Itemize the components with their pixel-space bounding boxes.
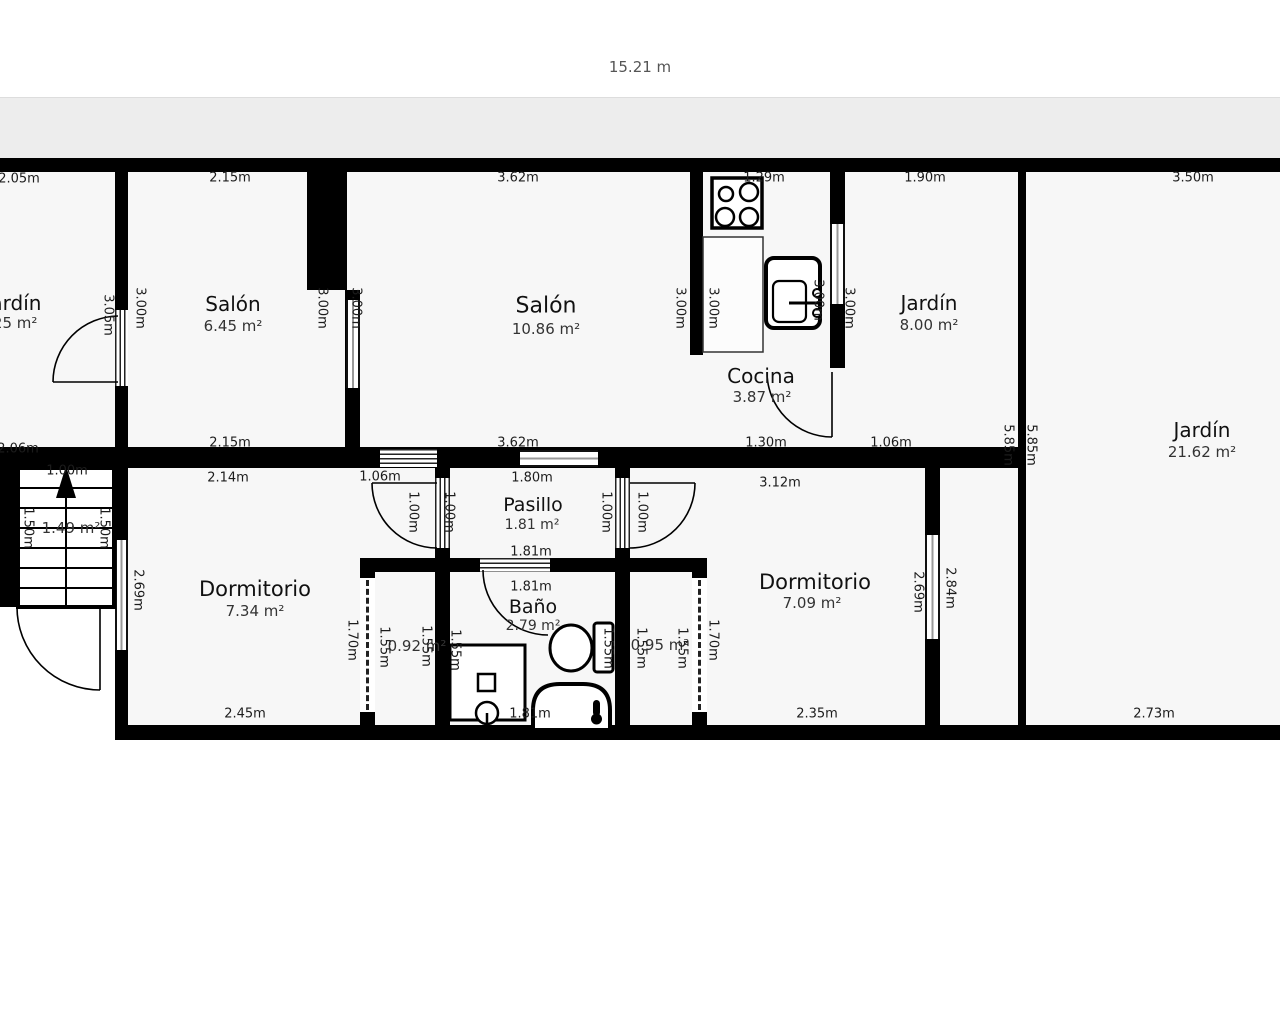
- dimension-label: 3.00m: [349, 287, 364, 329]
- dimension-label: 1.70m: [345, 619, 360, 661]
- room-name-dormitorio-left: Dormitorio: [199, 577, 311, 601]
- dimension-label: 1.81m: [509, 707, 551, 722]
- dimension-label: 1.55m: [448, 629, 463, 671]
- dimension-label: 1.06m: [870, 436, 912, 451]
- door-swing: [17, 607, 100, 690]
- dimension-label: 1.00m: [442, 491, 457, 533]
- dimension-label: 3.00m: [842, 287, 857, 329]
- dimension-label: 2.73m: [1133, 707, 1175, 722]
- dimension-label: 3.62m: [497, 436, 539, 451]
- room-area-cocina: 3.87 m²: [733, 388, 792, 406]
- room-name-pasillo: Pasillo: [503, 494, 563, 516]
- room-area-closet-left: 0.92 m²: [388, 637, 447, 655]
- dimension-label: 2.06m: [0, 442, 39, 457]
- dimension-label: 3.62m: [497, 171, 539, 186]
- dimension-label: 2.15m: [209, 436, 251, 451]
- dimension-label: 3.50m: [1172, 171, 1214, 186]
- room-name-dormitorio-right: Dormitorio: [759, 570, 871, 594]
- room-area-bano: 2.79 m²: [506, 618, 561, 634]
- room-name-jardin-large: Jardín: [1174, 418, 1231, 442]
- dimension-label: 1.50m: [97, 507, 112, 549]
- floor-plan: 15.21 m: [0, 0, 1280, 1024]
- dimension-label: 1.30m: [745, 436, 787, 451]
- dimension-label: 1.00m: [635, 491, 650, 533]
- total-width-label: 15.21 m: [609, 58, 671, 76]
- room-name-jardin-left: Jardín: [0, 291, 41, 315]
- dimension-label: 1.90m: [904, 171, 946, 186]
- room-area-salon-large: 10.86 m²: [512, 320, 580, 338]
- dimension-label: 2.35m: [796, 707, 838, 722]
- room-area-jardin-large: 21.62 m²: [1168, 443, 1236, 461]
- dimension-label: 2.69m: [131, 569, 146, 611]
- dimension-label: 1.06m: [359, 470, 401, 485]
- dimension-label: 1.80m: [511, 471, 553, 486]
- dimension-label: 1.81m: [510, 545, 552, 560]
- dimension-label: 5.85m: [1024, 424, 1039, 466]
- dimension-label: 1.55m: [675, 627, 690, 669]
- room-area-salon-small: 6.45 m²: [204, 317, 263, 335]
- room-name-bano: Baño: [509, 596, 557, 618]
- room-name-salon-small: Salón: [205, 292, 260, 316]
- stove-icon: [712, 178, 762, 228]
- dimension-label: 2.84m: [943, 567, 958, 609]
- room-area-dormitorio-left: 7.34 m²: [226, 602, 285, 620]
- room-area-stairs: 1.49 m²: [42, 519, 101, 537]
- door-swing: [372, 483, 437, 548]
- room-name-cocina: Cocina: [727, 364, 795, 388]
- dimension-label: 2.05m: [0, 172, 40, 187]
- dimension-label: 1.55m: [377, 626, 392, 668]
- dimension-label: 2.69m: [911, 571, 926, 613]
- room-area-jardin-left: 6.25 m²: [0, 314, 37, 332]
- dimension-label: 5.85m: [1001, 424, 1016, 466]
- dimension-label: 2.14m: [207, 471, 249, 486]
- dimension-label: 1.55m: [601, 627, 616, 669]
- dimension-label: 1.00m: [406, 491, 421, 533]
- dimension-label: 3.00m: [673, 287, 688, 329]
- dimension-label: 1.29m: [743, 171, 785, 186]
- dimension-label: 3.00m: [706, 287, 721, 329]
- dimension-label: 3.00m: [811, 279, 826, 321]
- dimension-label: 1.50m: [21, 507, 36, 549]
- room-area-jardin-mid: 8.00 m²: [900, 316, 959, 334]
- dimension-label: 1.00m: [599, 491, 614, 533]
- dimension-label: 2.15m: [209, 171, 251, 186]
- dimension-label: 1.55m: [634, 627, 649, 669]
- dimension-label: 1.70m: [706, 619, 721, 661]
- dimension-label: 3.05m: [101, 294, 116, 336]
- dimension-label: 1.00m: [46, 464, 88, 479]
- room-area-pasillo: 1.81 m²: [505, 517, 560, 533]
- dimension-label: 1.55m: [419, 625, 434, 667]
- dimension-label: 2.45m: [224, 707, 266, 722]
- dimension-label: 1.81m: [510, 580, 552, 595]
- dimension-label: 3.12m: [759, 476, 801, 491]
- room-name-salon-large: Salón: [516, 294, 577, 319]
- dimension-label: 3.00m: [133, 287, 148, 329]
- room-area-dormitorio-right: 7.09 m²: [783, 594, 842, 612]
- dimension-label: 3.00m: [315, 287, 330, 329]
- room-name-jardin-mid: Jardín: [901, 291, 958, 315]
